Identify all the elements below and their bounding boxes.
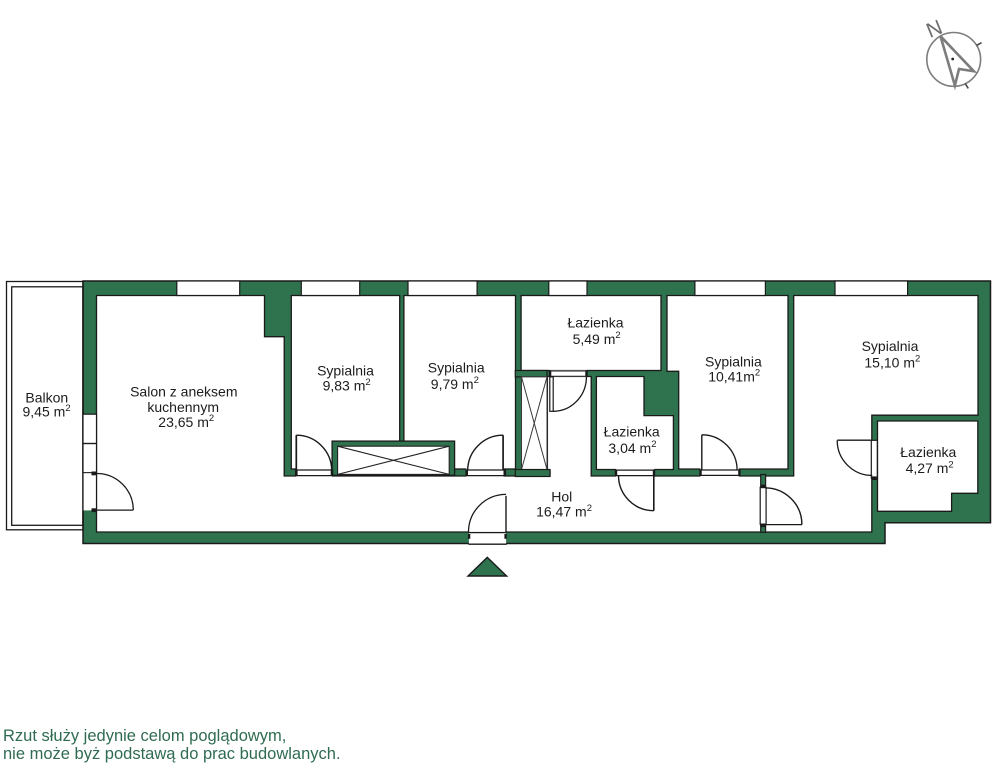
svg-text:Hol: Hol xyxy=(551,489,572,505)
svg-text:Łazienka: Łazienka xyxy=(604,424,660,440)
svg-text:5,49 m2: 5,49 m2 xyxy=(573,330,621,347)
svg-text:9,45 m2: 9,45 m2 xyxy=(23,403,71,420)
svg-text:Sypialnia: Sypialnia xyxy=(705,354,762,370)
svg-text:Łazienka: Łazienka xyxy=(567,315,623,331)
svg-text:9,79 m2: 9,79 m2 xyxy=(431,375,479,392)
svg-text:10,41m2: 10,41m2 xyxy=(708,368,760,385)
svg-text:Sypialnia: Sypialnia xyxy=(862,338,919,354)
svg-text:9,83 m2: 9,83 m2 xyxy=(323,377,371,394)
svg-text:nie może byż podstawą do prac: nie może byż podstawą do prac budowlanyc… xyxy=(3,745,341,763)
svg-text:16,47 m2: 16,47 m2 xyxy=(536,503,592,520)
svg-text:3,04 m2: 3,04 m2 xyxy=(608,439,656,456)
svg-text:Sypialnia: Sypialnia xyxy=(428,359,485,375)
svg-text:Salon z aneksem: Salon z aneksem xyxy=(130,383,237,399)
svg-text:Łazienka: Łazienka xyxy=(900,444,956,460)
svg-text:15,10 m2: 15,10 m2 xyxy=(864,354,920,371)
svg-text:Rzut służy jedynie celom poglą: Rzut służy jedynie celom poglądowym, xyxy=(3,727,286,745)
svg-text:23,65 m2: 23,65 m2 xyxy=(158,413,214,430)
svg-text:4,27 m2: 4,27 m2 xyxy=(906,459,954,476)
